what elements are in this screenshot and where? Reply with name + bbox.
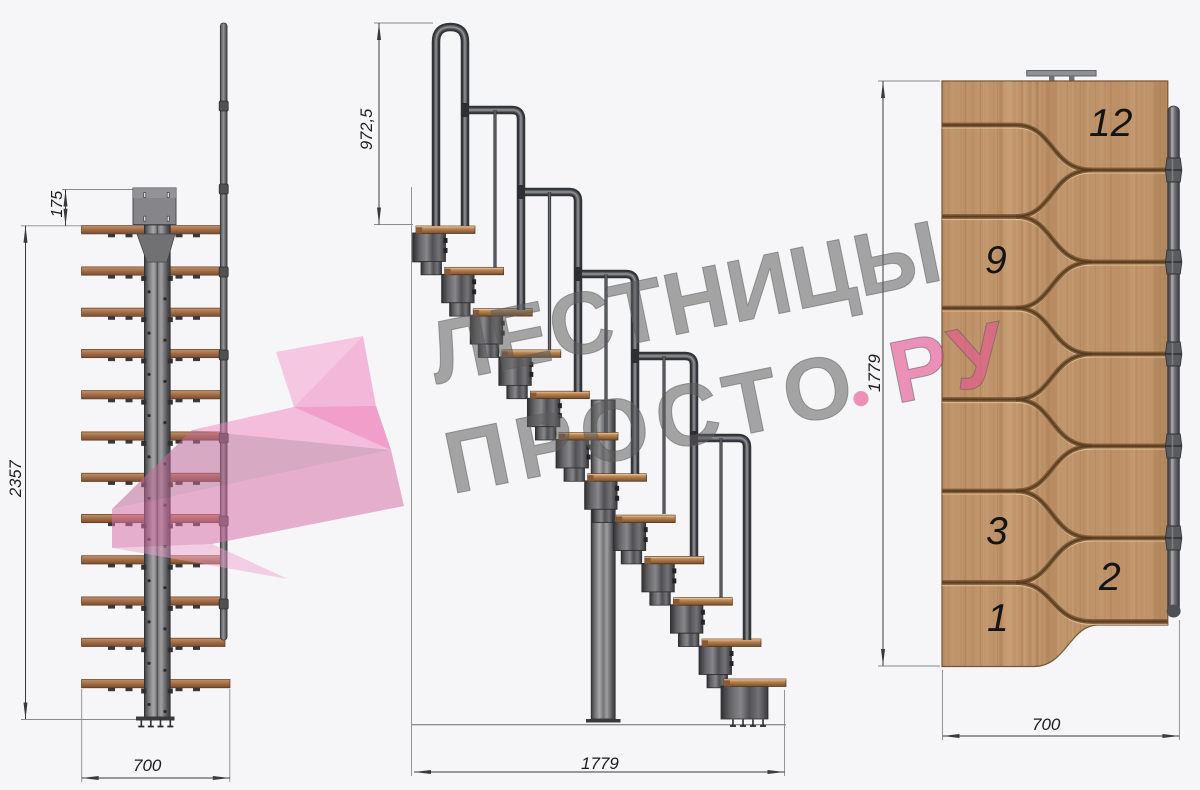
svg-text:1: 1: [987, 597, 1009, 640]
svg-text:700: 700: [133, 756, 162, 775]
svg-text:2: 2: [1098, 556, 1121, 599]
svg-text:1779: 1779: [865, 354, 884, 392]
svg-text:3: 3: [986, 510, 1008, 553]
svg-text:175: 175: [49, 191, 66, 218]
svg-text:1779: 1779: [581, 754, 619, 773]
svg-text:700: 700: [1032, 715, 1061, 734]
svg-text:9: 9: [985, 239, 1007, 282]
svg-text:12: 12: [1089, 102, 1133, 145]
svg-text:2357: 2357: [7, 459, 25, 498]
svg-text:972,5: 972,5: [358, 108, 376, 150]
